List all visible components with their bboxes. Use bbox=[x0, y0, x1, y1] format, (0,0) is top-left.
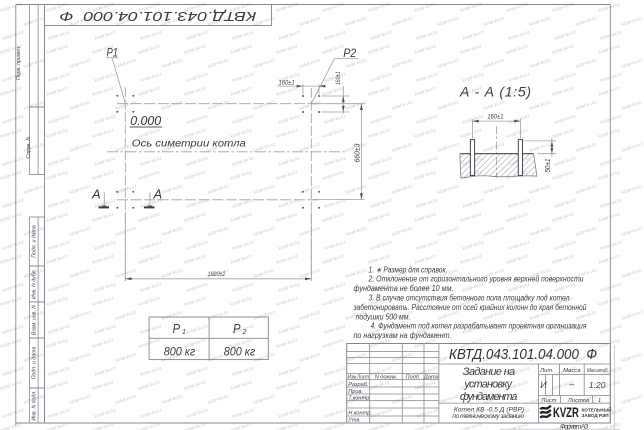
svg-text:фундамента не более 10 мм.: фундамента не более 10 мм. bbox=[354, 284, 454, 293]
svg-text:160±1: 160±1 bbox=[335, 71, 342, 85]
svg-text:Перв. примен.: Перв. примен. bbox=[16, 46, 22, 80]
svg-text:160±1: 160±1 bbox=[487, 113, 504, 120]
svg-text:0.000: 0.000 bbox=[130, 113, 162, 128]
svg-text:Справ. N: Справ. N bbox=[26, 137, 32, 159]
svg-text:Пров.: Пров. bbox=[348, 389, 363, 395]
svg-text:160±1: 160±1 bbox=[279, 80, 296, 87]
svg-text:Разраб.: Разраб. bbox=[348, 382, 368, 388]
svg-text:забетонировать. Расстояние от: забетонировать. Расстояние от осей крайн… bbox=[353, 303, 587, 312]
svg-text:фундамента: фундамента bbox=[460, 391, 517, 403]
svg-text:1920±2: 1920±2 bbox=[208, 271, 226, 278]
svg-text:1: 1 bbox=[182, 329, 186, 336]
svg-text:ЗАВОД РЭП: ЗАВОД РЭП bbox=[582, 413, 609, 418]
svg-text:А - А (1:5): А - А (1:5) bbox=[459, 84, 531, 100]
svg-text:Лит.: Лит. bbox=[539, 368, 554, 374]
svg-text:подушки 500 мм.: подушки 500 мм. bbox=[356, 312, 411, 321]
svg-text:800 кг: 800 кг bbox=[224, 345, 256, 359]
svg-text:800 кг: 800 кг bbox=[164, 345, 196, 359]
svg-text:KVZR: KVZR bbox=[553, 404, 579, 420]
svg-text:по техническому заданию: по техническому заданию bbox=[452, 412, 524, 420]
svg-text:Лист: Лист bbox=[540, 398, 556, 404]
svg-text:660±3: 660±3 bbox=[354, 143, 361, 162]
svg-text:Р: Р bbox=[173, 321, 181, 336]
svg-text:Инв. N дубл.: Инв. N дубл. bbox=[32, 269, 38, 299]
svg-text:Формат А3: Формат А3 bbox=[560, 423, 588, 430]
svg-text:Подп. и дата: Подп. и дата bbox=[32, 347, 38, 380]
svg-text:2: 2 bbox=[242, 329, 247, 336]
svg-text:Дата: Дата bbox=[423, 375, 439, 381]
svg-text:по нагрузкам на фундамент.: по нагрузкам на фундамент. bbox=[354, 331, 452, 340]
svg-text:Утв.: Утв. bbox=[347, 418, 361, 424]
svg-text:КВТД.043.101.04.000 Ф: КВТД.043.101.04.000 Ф bbox=[60, 9, 257, 24]
svg-text:А: А bbox=[153, 187, 163, 202]
svg-text:Т.контр.: Т.контр. bbox=[348, 396, 371, 402]
svg-text:Листов: Листов bbox=[567, 398, 589, 404]
svg-text:1:20: 1:20 bbox=[589, 380, 606, 390]
svg-text:А: А bbox=[91, 187, 101, 202]
svg-text:3. В случае отсутствия бетонно: 3. В случае отсутствия бетонного пола пл… bbox=[369, 294, 570, 303]
svg-text:И: И bbox=[540, 380, 547, 390]
svg-text:КОТЕЛЬНЫЙ: КОТЕЛЬНЫЙ bbox=[582, 406, 612, 413]
svg-text:P1: P1 bbox=[107, 45, 119, 59]
svg-text:Р: Р bbox=[233, 321, 241, 336]
svg-text:Взам. инв. N: Взам. инв. N bbox=[32, 305, 38, 335]
svg-text:50±1: 50±1 bbox=[545, 158, 552, 172]
svg-text:Н.контр.: Н.контр. bbox=[348, 411, 372, 417]
svg-text:Подп. и дата: Подп. и дата bbox=[32, 225, 38, 258]
svg-text:Масса: Масса bbox=[563, 368, 581, 374]
svg-text:1: 1 bbox=[598, 398, 601, 404]
svg-text:Изм.Лист: Изм.Лист bbox=[348, 375, 369, 381]
svg-text:Подп.: Подп. bbox=[406, 375, 421, 381]
svg-text:Задание на: Задание на bbox=[463, 366, 515, 378]
svg-text:4. Фундамент под котел разраба: 4. Фундамент под котел разрабатывает про… bbox=[371, 322, 588, 331]
svg-text:установку: установку bbox=[463, 378, 512, 390]
svg-text:КВТД.043.101.04.000 Ф: КВТД.043.101.04.000 Ф bbox=[449, 347, 597, 363]
svg-text:1. ∗ Размер для справок.: 1. ∗ Размер для справок. bbox=[369, 265, 448, 274]
svg-text:Ось симетрии котла: Ось симетрии котла bbox=[132, 138, 246, 150]
svg-text:–: – bbox=[568, 379, 575, 389]
svg-text:Масштаб: Масштаб bbox=[587, 368, 608, 374]
svg-text:N докум.: N докум. bbox=[375, 375, 398, 381]
svg-text:Инв. N подл.: Инв. N подл. bbox=[32, 390, 38, 420]
svg-text:2. Отклонение от горизонтально: 2. Отклонение от горизонтального уровня … bbox=[368, 275, 584, 284]
